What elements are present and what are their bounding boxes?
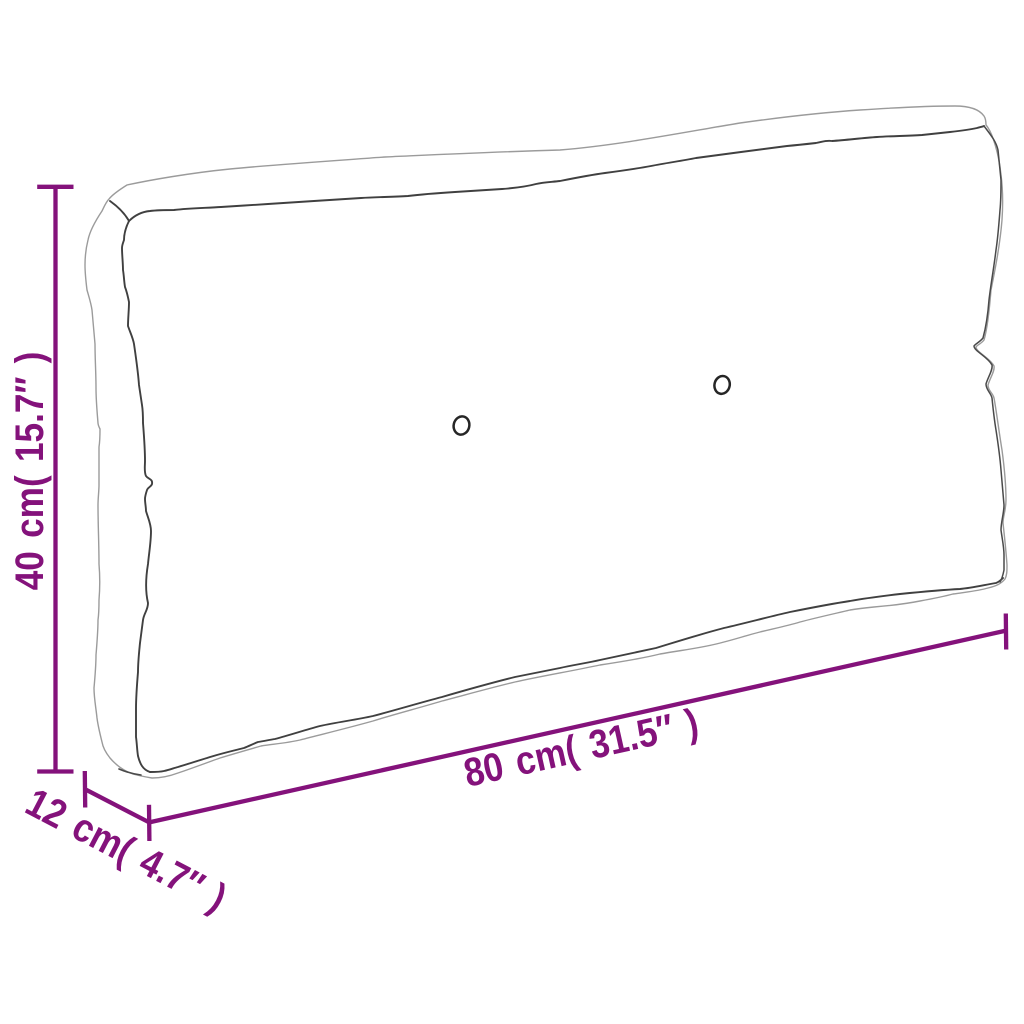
svg-text:12 cm( 4.7″ ): 12 cm( 4.7″ ) (19, 779, 234, 920)
svg-text:80 cm( 31.5″ ): 80 cm( 31.5″ ) (460, 700, 703, 796)
svg-text:40 cm( 15.7″ ): 40 cm( 15.7″ ) (7, 352, 52, 591)
